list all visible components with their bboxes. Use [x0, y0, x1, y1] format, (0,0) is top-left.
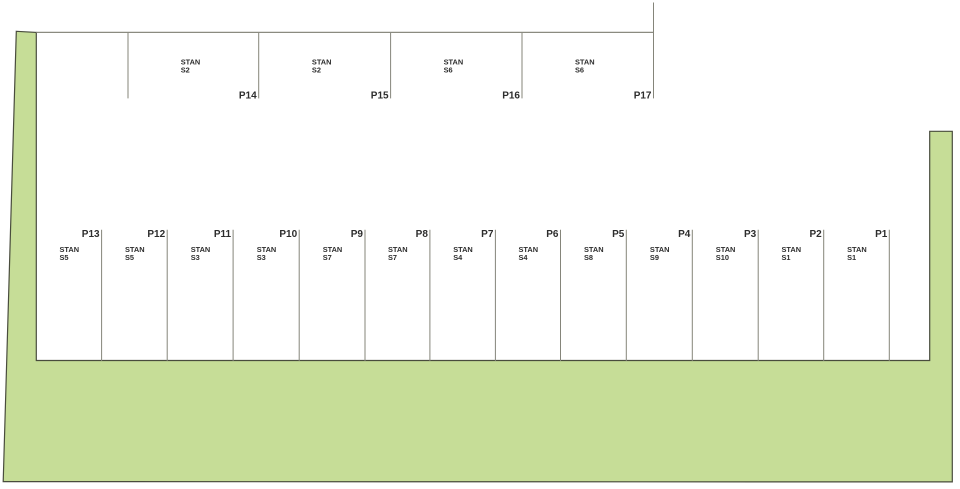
svg-text:P7: P7	[481, 229, 494, 240]
svg-text:P2: P2	[809, 229, 822, 240]
svg-text:P4: P4	[678, 229, 691, 240]
svg-text:P3: P3	[744, 229, 757, 240]
svg-text:P15: P15	[371, 91, 389, 102]
svg-text:P14: P14	[239, 91, 257, 102]
svg-text:P17: P17	[634, 91, 652, 102]
svg-text:P16: P16	[502, 91, 520, 102]
svg-text:P1: P1	[875, 229, 888, 240]
svg-text:P8: P8	[416, 229, 429, 240]
svg-text:P6: P6	[546, 229, 559, 240]
svg-text:P5: P5	[612, 229, 625, 240]
svg-text:P10: P10	[279, 229, 297, 240]
svg-text:P11: P11	[214, 229, 232, 240]
svg-text:P13: P13	[82, 229, 100, 240]
svg-text:P12: P12	[147, 229, 165, 240]
svg-text:P9: P9	[351, 229, 364, 240]
